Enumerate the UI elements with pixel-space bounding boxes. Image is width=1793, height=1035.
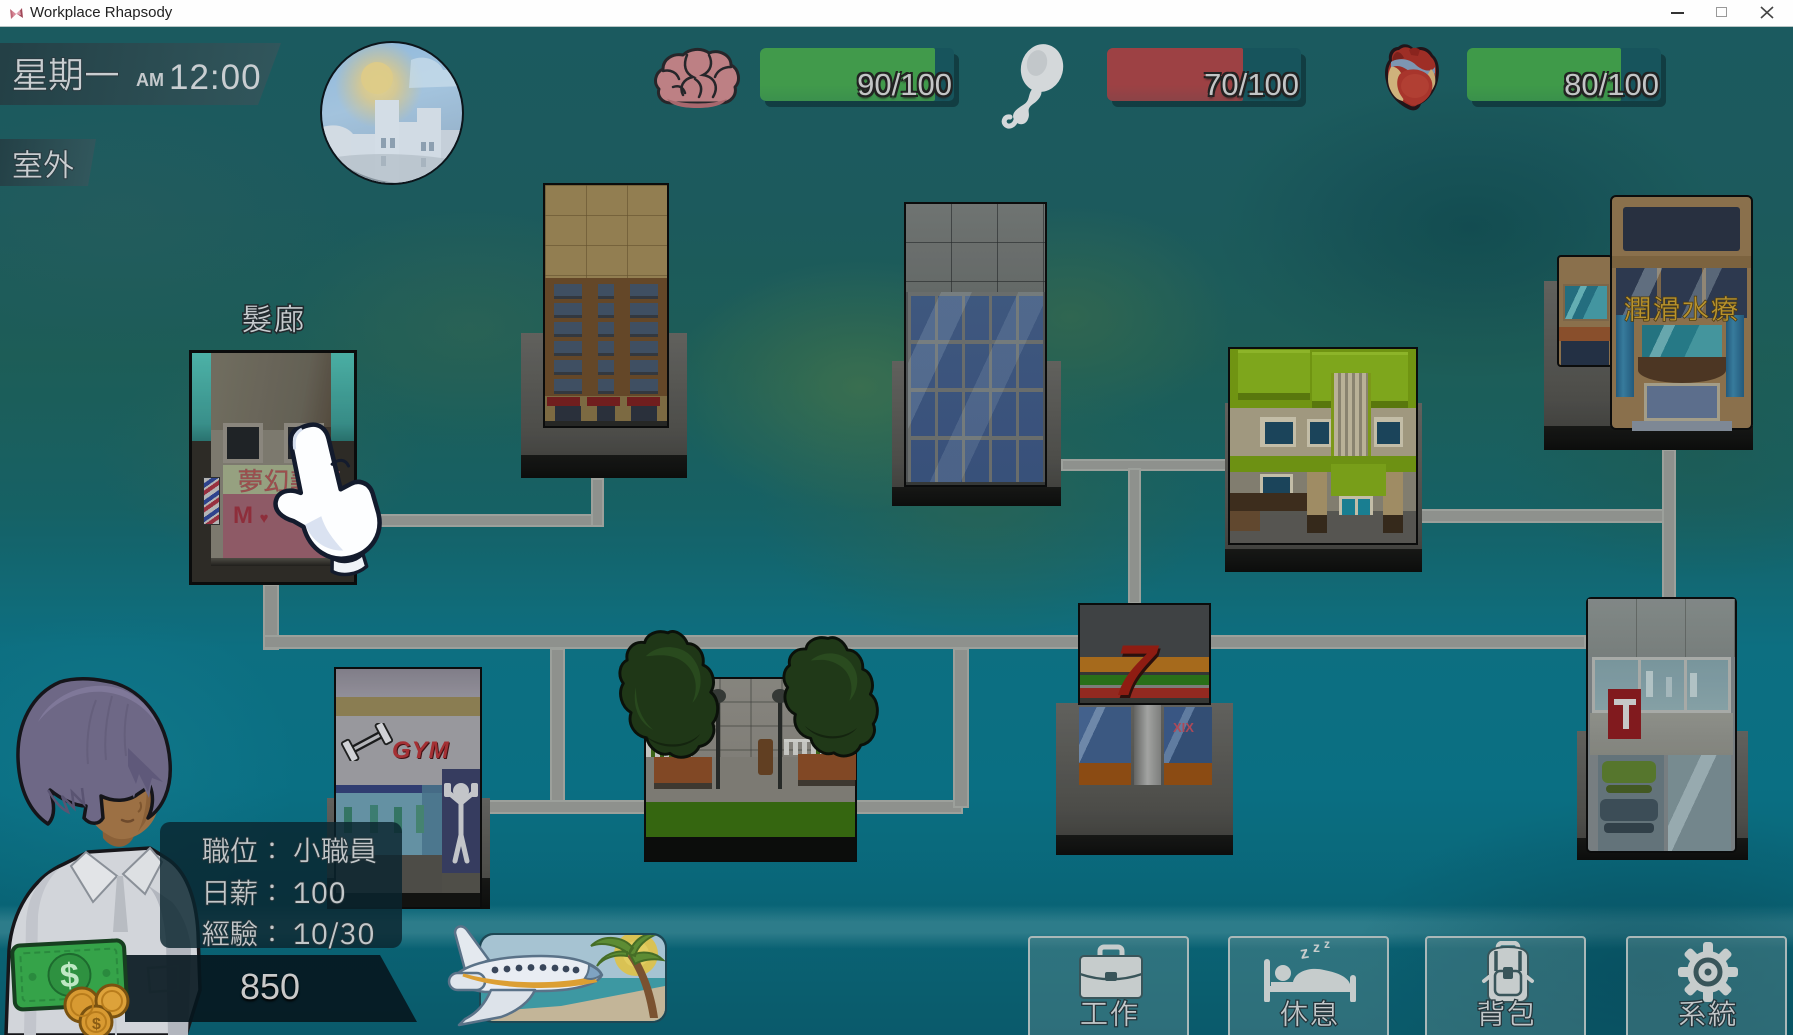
- svg-text:$: $: [92, 1016, 101, 1033]
- svg-text:z: z: [1299, 943, 1311, 963]
- svg-text:z: z: [1313, 940, 1320, 955]
- svg-text:z: z: [1324, 940, 1330, 951]
